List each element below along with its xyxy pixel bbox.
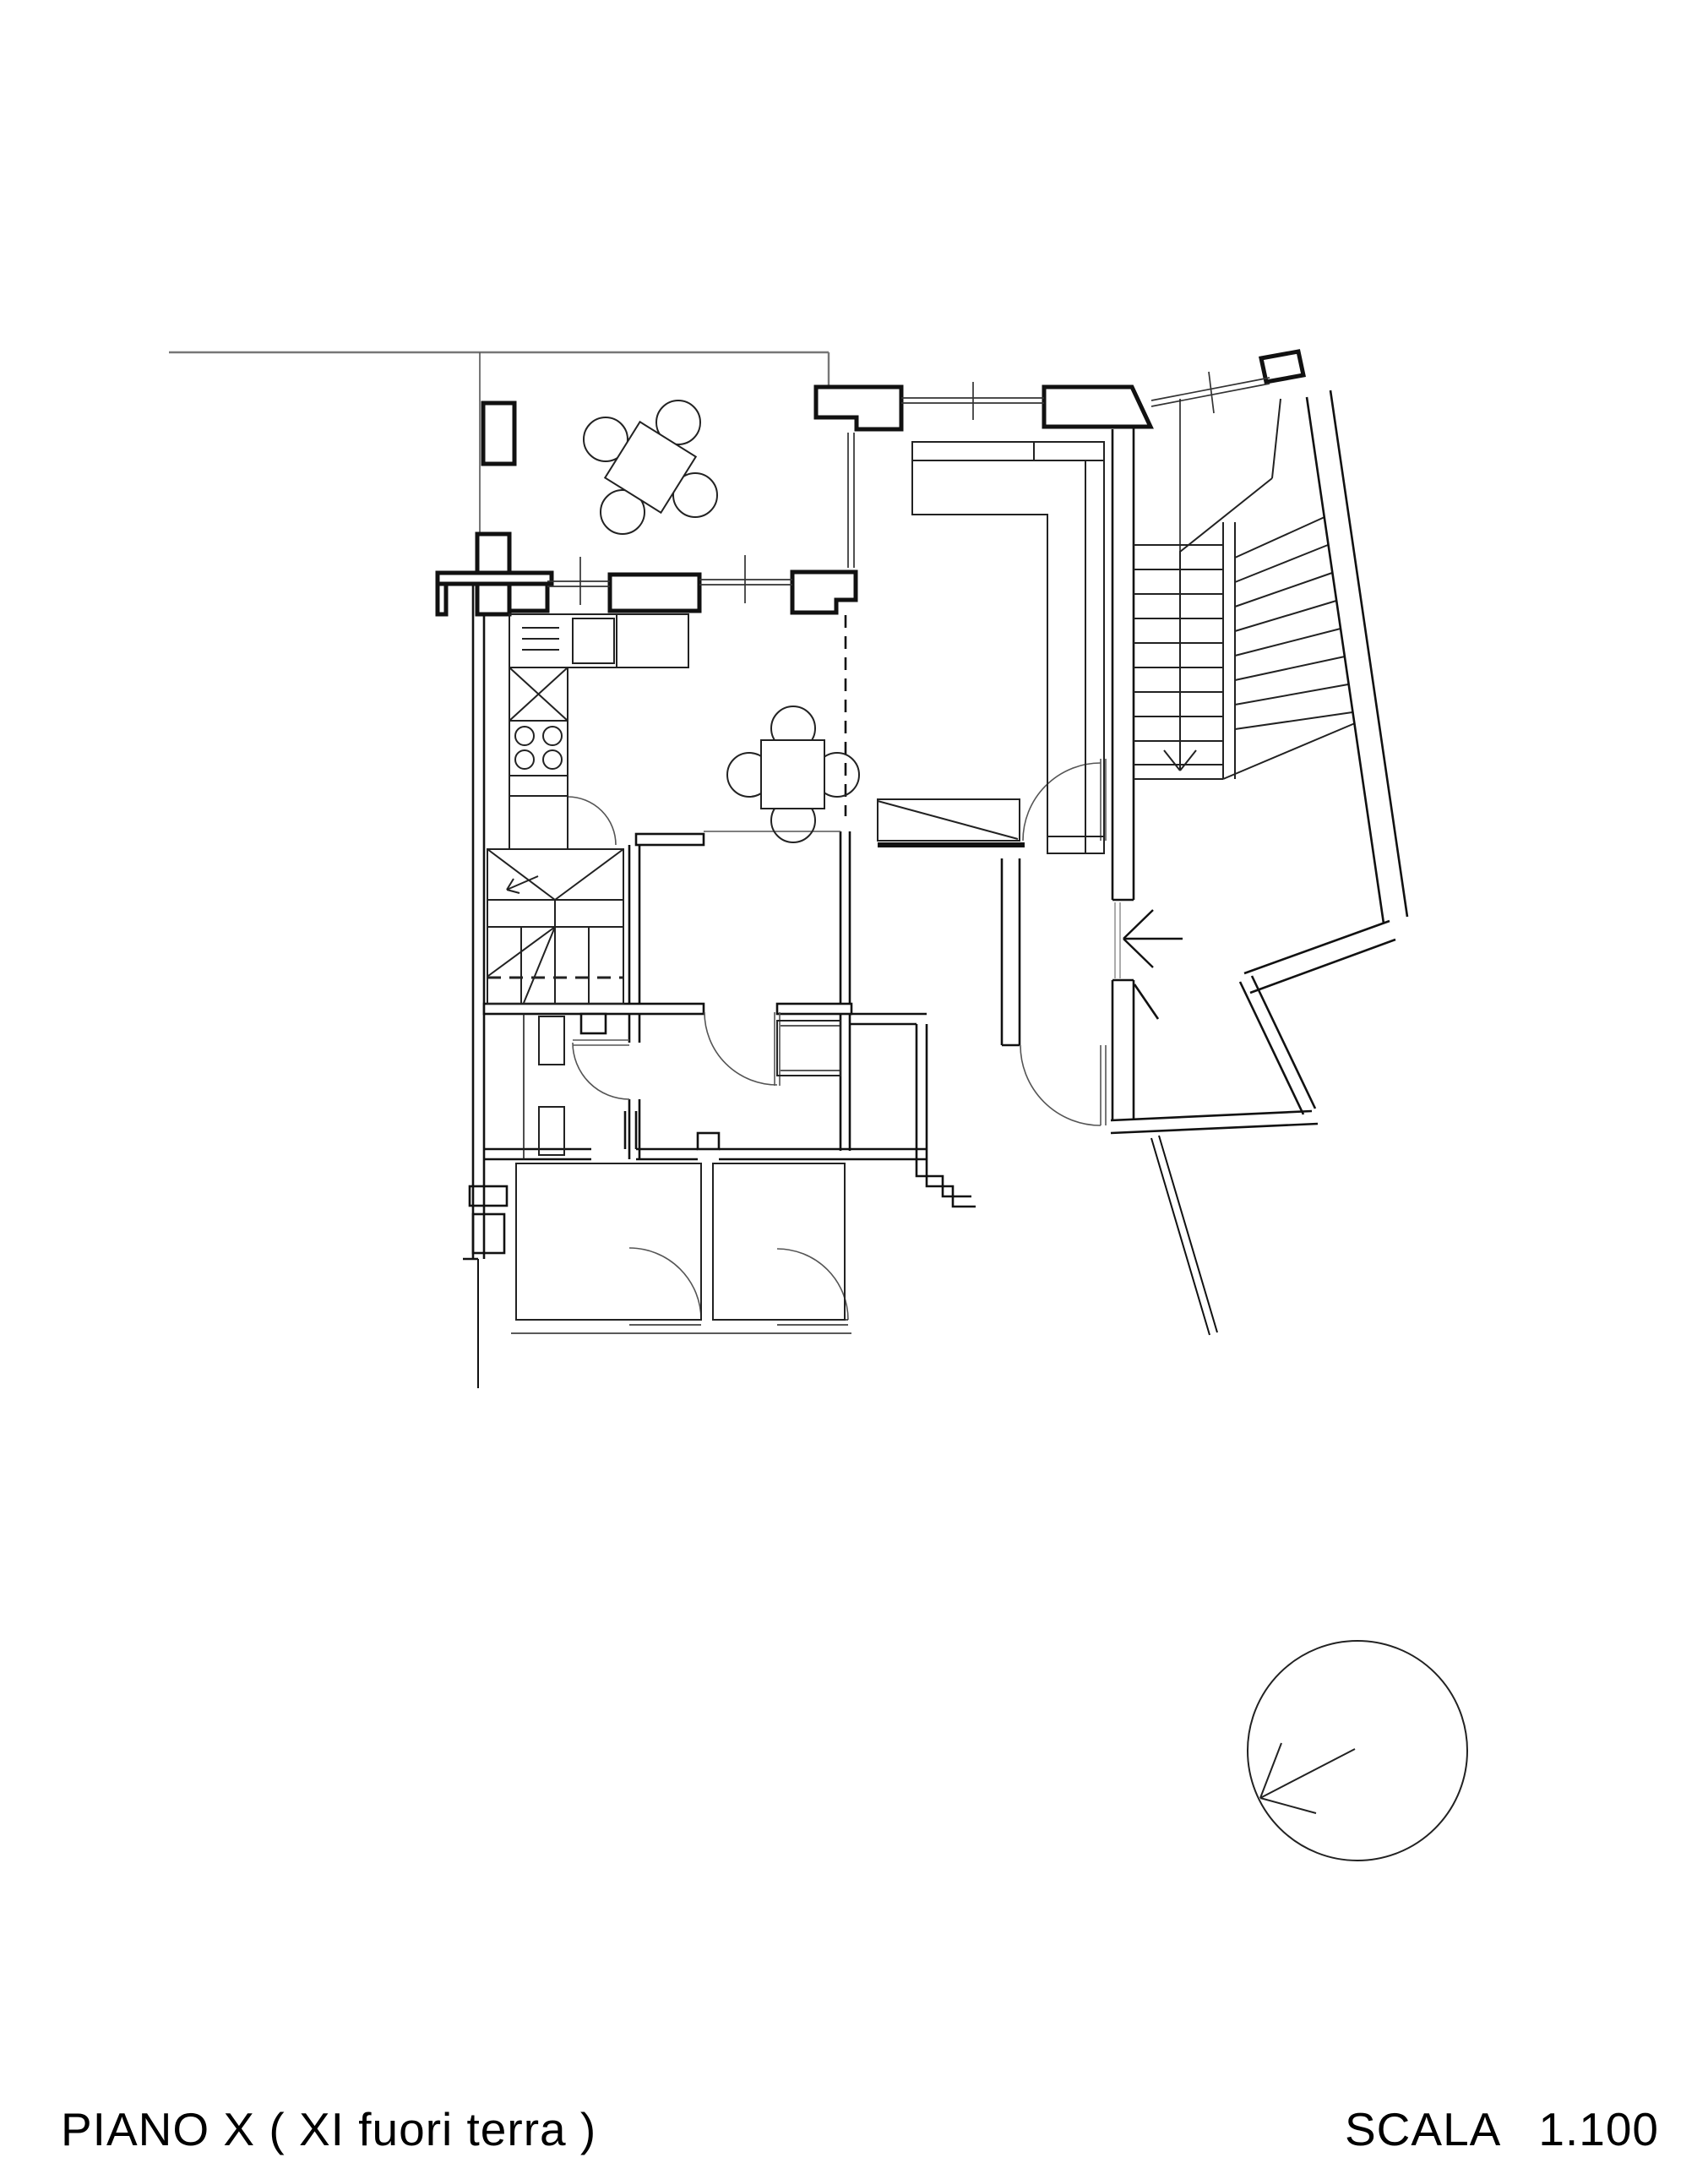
kitchen-units: [509, 614, 688, 849]
down-arrow-icon: [1164, 551, 1196, 771]
dining-set: [727, 706, 859, 842]
fridge-cross-icon: [509, 667, 568, 721]
drawing-sheet: PIANO X ( XI fuori terra ) SCALA1.100: [0, 0, 1708, 2163]
tree-icon: [1248, 1641, 1467, 1861]
bathroom-fixtures: [524, 1014, 840, 1159]
drainer-lines: [522, 628, 559, 650]
kitchen-counter: [509, 614, 688, 667]
bidet-icon: [539, 1107, 564, 1155]
scale-label: SCALA1.100: [1345, 2102, 1659, 2156]
dining-table-icon: [761, 740, 824, 809]
winder-stair-icon: [487, 849, 623, 1004]
floor-plan: [0, 0, 1708, 2163]
tilted-stairwell-walls: [1111, 390, 1407, 1335]
sofa-icon: [912, 442, 1104, 853]
scale-value: 1.100: [1538, 2103, 1659, 2155]
main-stair-icon: [1134, 399, 1355, 779]
lower-rooms: [511, 1163, 851, 1333]
wall-piers: [438, 351, 1303, 614]
entry-arrow-icon: [1123, 910, 1183, 967]
floor-title: PIANO X ( XI fuori terra ): [61, 2102, 596, 2156]
sloped-ceiling-wedge: [878, 799, 1025, 845]
terrace-table-icon: [605, 422, 695, 512]
stove-burners-icon: [509, 721, 568, 776]
terrace-set: [584, 400, 717, 534]
kitchen-sink-icon: [573, 618, 614, 663]
toilet-icon: [539, 1016, 564, 1065]
scale-word: SCALA: [1345, 2103, 1501, 2155]
shower-box-icon: [777, 1021, 840, 1076]
